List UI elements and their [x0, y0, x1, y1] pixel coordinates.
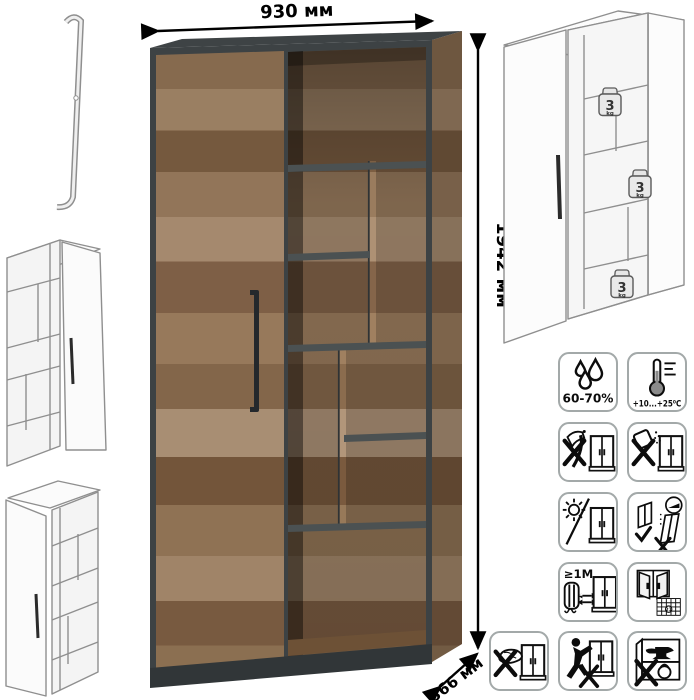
no-chopping-icon — [558, 422, 618, 482]
kettlebell-glyph — [658, 665, 670, 679]
drawing-door-handle — [36, 594, 38, 638]
no-dragging-icon — [558, 631, 618, 691]
ventilation-icon: 21 — [627, 562, 687, 622]
window-glyph — [637, 571, 669, 599]
level-surface-icon — [627, 492, 687, 552]
no-spill-icon — [627, 422, 687, 482]
drawing-open-door — [6, 500, 46, 696]
radiator-glyph — [565, 583, 579, 609]
load-badge: 3 kg — [629, 170, 651, 199]
temperature-label: +10...+25⁰C — [633, 399, 682, 409]
heater-distance-icon: ≥1М — [558, 562, 618, 622]
cabinet-internal-drawing: 3 kg 3 kg 3 kg — [498, 3, 694, 347]
furniture-product-sheet: 930 мм 1942 мм 366 мм — [0, 0, 694, 700]
humidity-icon: 60-70% — [558, 352, 618, 412]
svg-text:kg: kg — [618, 293, 626, 299]
cabinet-photo — [138, 24, 470, 694]
drawing-shelf-face — [52, 492, 98, 694]
min-distance-label: ≥1М — [564, 567, 593, 581]
calendar-day-label: 21 — [665, 607, 671, 613]
humidity-label: 60-70% — [563, 392, 614, 406]
no-abrasive-icon — [489, 631, 549, 691]
svg-text:kg: kg — [606, 111, 614, 117]
drawing-shelf-face — [7, 240, 60, 466]
load-badge: 3 kg — [611, 270, 633, 299]
cabinet-drawing-door-left — [0, 468, 128, 700]
load-badge: 3 kg — [599, 88, 621, 117]
handle-drawing — [26, 4, 100, 236]
width-dimension-label: 930 мм — [260, 0, 334, 23]
svg-text:kg: kg — [636, 193, 644, 199]
shelf-column — [288, 47, 426, 672]
sun-glyph — [563, 499, 585, 521]
cabinet-drawing-door-right — [0, 228, 128, 468]
drawing-door-handle — [71, 338, 73, 384]
drawing-open-door — [62, 242, 106, 450]
level-cabinet-glyph — [638, 502, 651, 527]
internal-door-handle — [558, 155, 560, 219]
internal-door — [504, 30, 566, 343]
temperature-icon: +10...+25⁰C — [627, 352, 687, 412]
no-overload-icon — [627, 631, 687, 691]
no-sunlight-icon — [558, 492, 618, 552]
